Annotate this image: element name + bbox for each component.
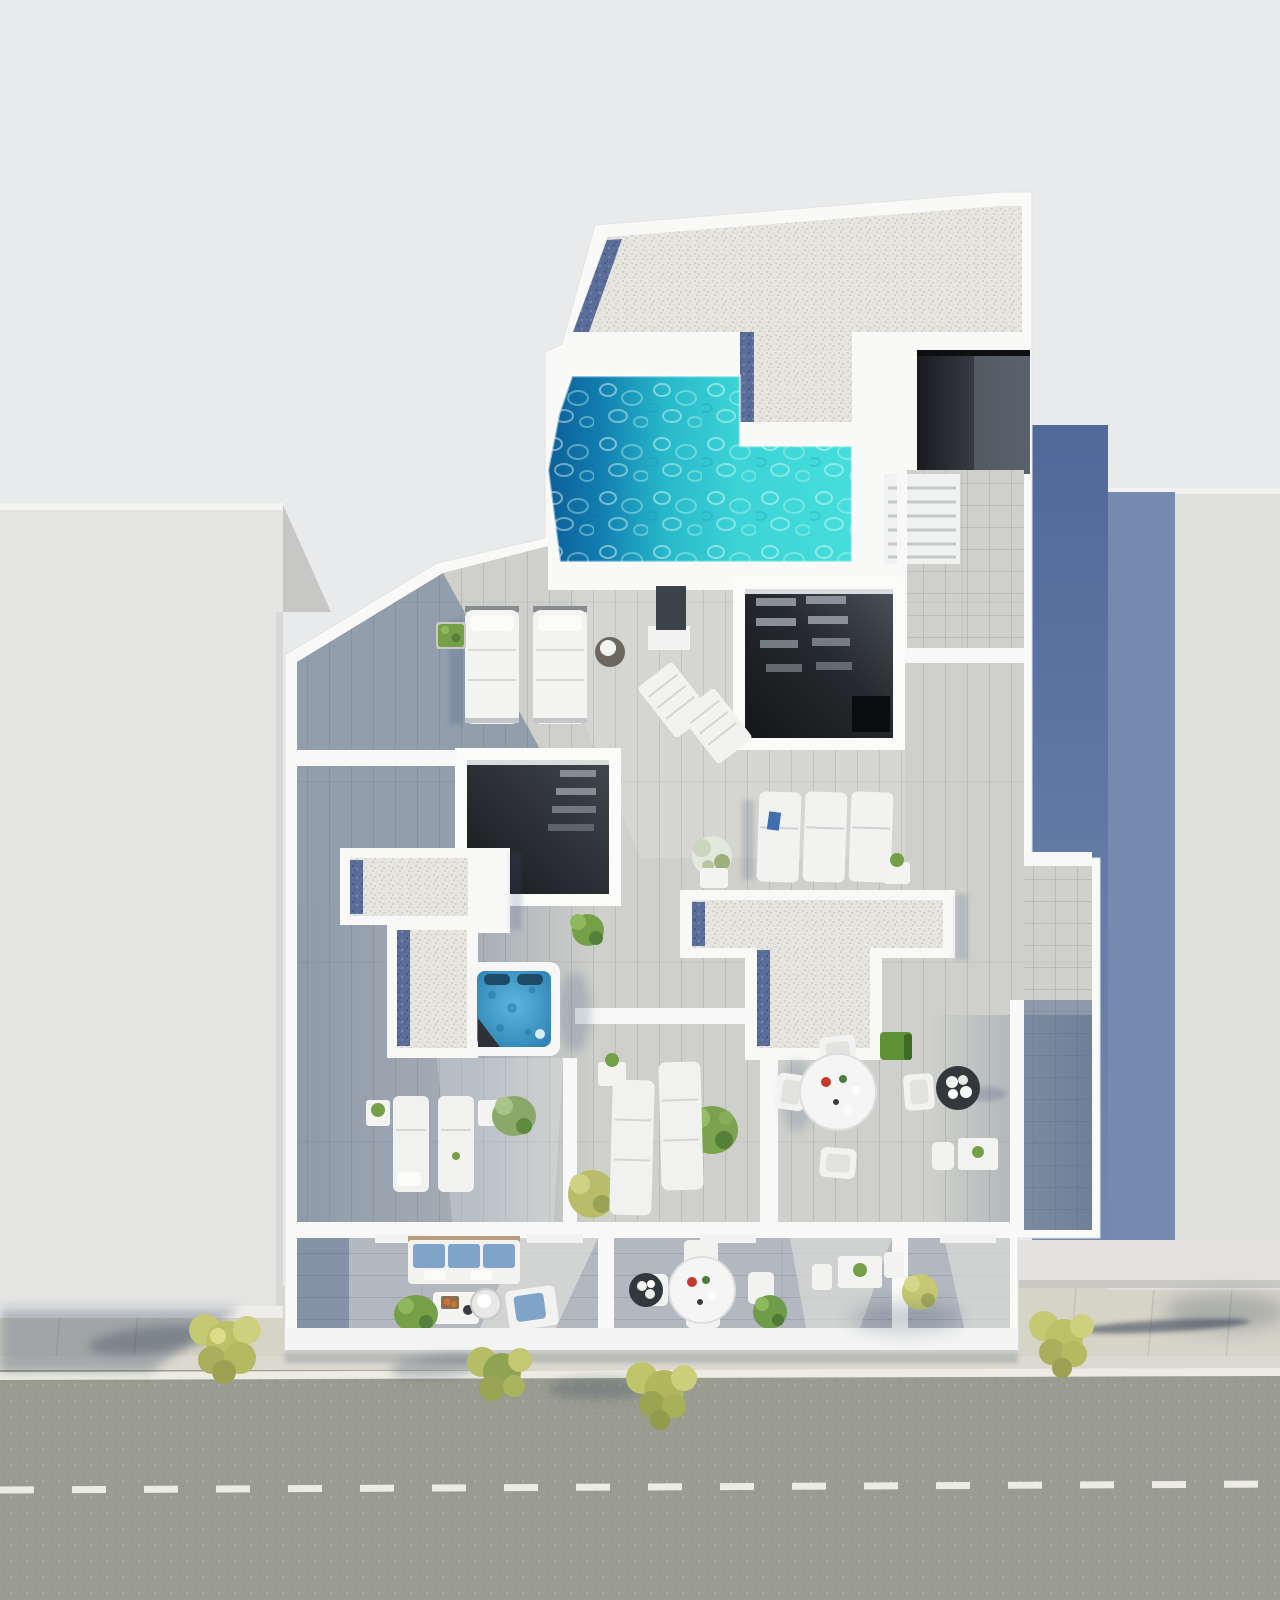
balcony-west-shadow xyxy=(297,1238,349,1328)
dining-chair-s xyxy=(819,1146,857,1179)
gravel-blue-T-stem xyxy=(757,950,770,1046)
small-table-plant xyxy=(972,1146,984,1158)
sun-lounger-b xyxy=(802,791,847,882)
left-building-roof xyxy=(0,503,283,1315)
center-table-plant xyxy=(605,1053,619,1067)
table-item-cup2 xyxy=(843,1105,853,1115)
table-item-cup1 xyxy=(852,1086,860,1094)
green-leafy-plant xyxy=(492,1096,536,1136)
gravel-L-cast-shadow xyxy=(510,852,522,930)
grass-patch-shade xyxy=(904,1034,912,1060)
gravel-blue-L-top xyxy=(350,860,363,914)
canopy-shadow-right-1 xyxy=(850,1304,960,1332)
left-neighbor-building xyxy=(0,503,331,1318)
sun-lounger-left-1 xyxy=(393,1096,429,1192)
hot-tub-headrest-right xyxy=(517,974,543,985)
gravel-blue-strip-tongue xyxy=(740,332,754,422)
wicker-side-table xyxy=(595,637,625,667)
wall-right-terrace-west xyxy=(760,1058,778,1230)
balcony-table-dark xyxy=(697,1299,703,1305)
hot-tub-headrest-left xyxy=(484,974,510,985)
sun-lounger-left-2 xyxy=(438,1096,474,1192)
bistro-chair-right xyxy=(884,1252,904,1278)
shower-panel xyxy=(656,586,686,630)
stair-shaft-lip xyxy=(917,350,1030,356)
dining-chair-e xyxy=(903,1073,935,1111)
gravel-T-top xyxy=(692,900,943,948)
wall-walkway-west xyxy=(1010,1000,1024,1230)
balcony-round-side-table xyxy=(471,1289,501,1319)
table-item-green xyxy=(839,1075,847,1083)
balcony-table-cup xyxy=(708,1292,716,1300)
gravel-T-stem xyxy=(757,948,870,1048)
sun-lounger-a xyxy=(756,791,801,882)
gravel-L-top xyxy=(350,858,468,916)
balcony-divider-1 xyxy=(598,1226,614,1328)
wall-upper-left xyxy=(295,750,457,766)
gravel-blue-T-top xyxy=(692,902,705,946)
right-building-low-facade xyxy=(1010,1280,1280,1288)
wall-center-north xyxy=(575,1008,760,1024)
bistro-chair-left xyxy=(812,1264,832,1290)
wall-walkway-north xyxy=(1024,852,1092,866)
roof-stair-shaft xyxy=(917,350,1030,474)
right-building-shadow-wedge xyxy=(1108,492,1175,1240)
left-side-table-plant-1 xyxy=(371,1103,385,1117)
balcony-bush-mid xyxy=(753,1295,787,1329)
left-building-roof-highlight xyxy=(0,503,283,510)
balcony-table-red xyxy=(687,1277,697,1287)
plant-box xyxy=(436,622,466,649)
table-item-dark xyxy=(833,1099,839,1105)
balcony-armchair xyxy=(504,1285,559,1332)
round-dining-table xyxy=(800,1054,876,1130)
stair-shaft-wood-floor xyxy=(974,350,1030,474)
bistro-table-plant xyxy=(853,1263,867,1277)
balcony-table-green xyxy=(702,1276,710,1284)
void1-dark-unit xyxy=(852,696,890,732)
left-building-edge-shade xyxy=(276,612,283,1312)
blue-towel xyxy=(767,811,781,830)
flower-planter-balcony xyxy=(629,1273,663,1307)
hot-tub-shadow xyxy=(559,972,591,1052)
sun-lounger-center-1 xyxy=(609,1079,655,1215)
gravel-blue-L-stem xyxy=(397,930,410,1046)
hot-tub-bubbles xyxy=(535,1029,545,1039)
table-item-red xyxy=(821,1077,831,1087)
skylight-void-east xyxy=(733,577,905,750)
wall-walkway-south xyxy=(905,648,1024,663)
padded-sunbed-1 xyxy=(465,606,519,724)
side-table-plant xyxy=(890,853,904,867)
right-building-low-wing xyxy=(1010,1240,1280,1284)
gravel-T-cast-shadow xyxy=(955,894,968,960)
small-table-chair xyxy=(932,1142,954,1170)
sun-lounger-center-2 xyxy=(658,1061,703,1190)
void1-lip-highlight xyxy=(745,589,893,594)
side-table-left xyxy=(700,868,728,888)
padded-sunbed-2 xyxy=(533,606,587,724)
hot-tub xyxy=(468,962,591,1056)
balcony-round-table xyxy=(669,1257,735,1323)
gravel-roof-tongue xyxy=(740,332,852,422)
main-facade-sidewalk-shadow xyxy=(285,1354,1018,1363)
render-canvas xyxy=(0,0,1280,1600)
yellow-bush-center xyxy=(568,1170,616,1218)
void2-lip-highlight xyxy=(467,760,609,765)
lounger-shadow-strip xyxy=(742,800,754,880)
balcony-sofa xyxy=(408,1236,520,1284)
balcony-plant-left xyxy=(394,1295,438,1333)
